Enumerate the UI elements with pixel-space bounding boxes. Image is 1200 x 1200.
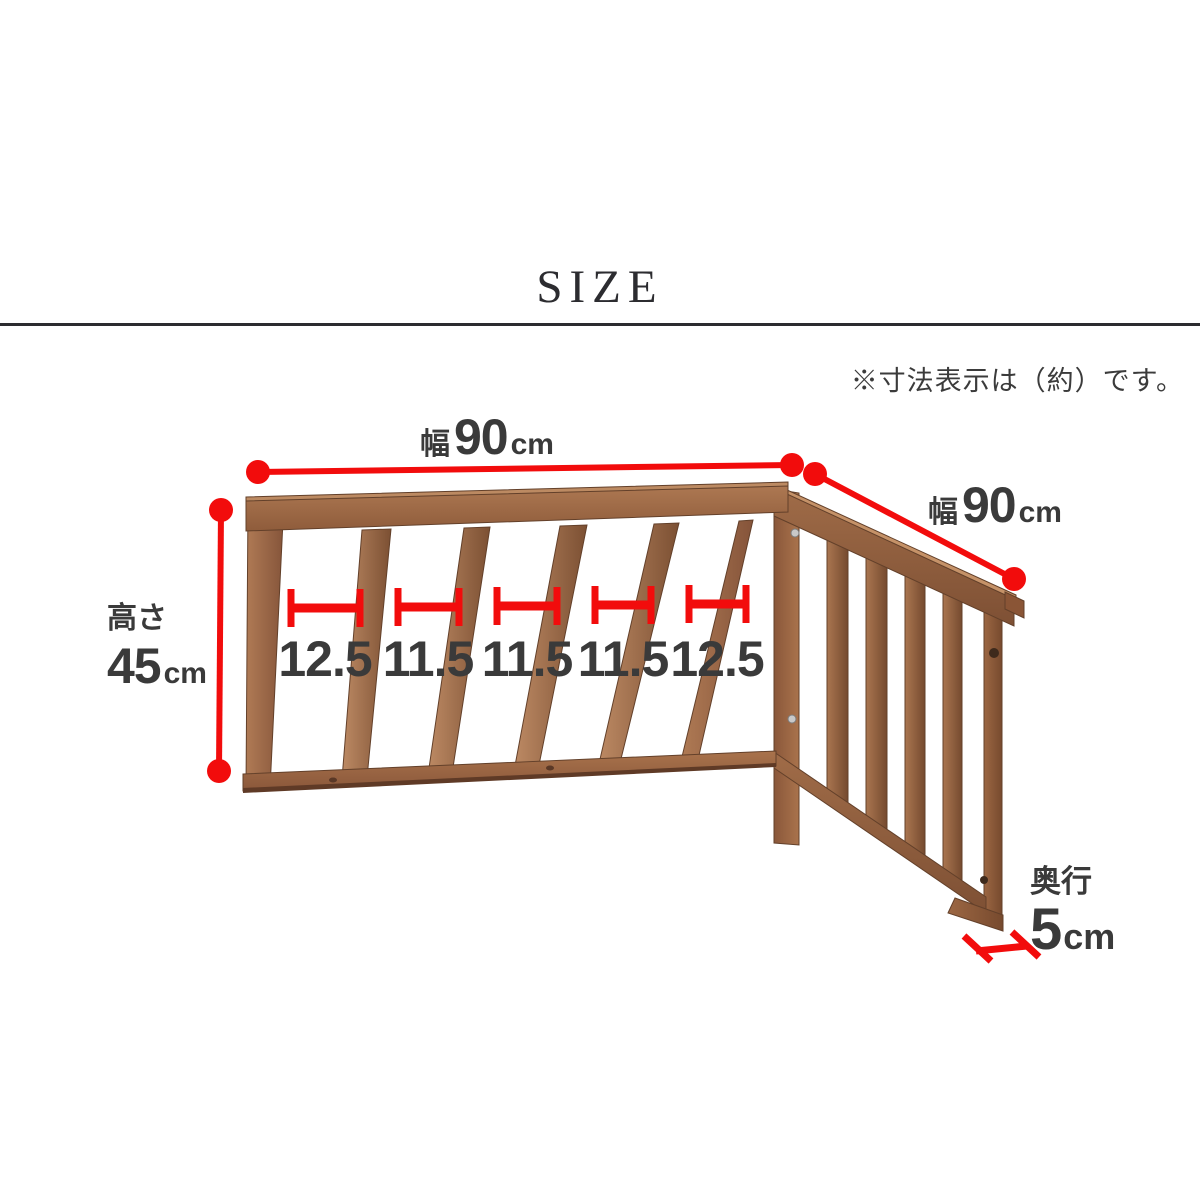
gap-value: 11.5 [482, 630, 573, 688]
gap-value: 12.5 [278, 630, 371, 688]
depth-value: 5 [1030, 901, 1061, 959]
fence-illustration [0, 0, 1200, 1200]
size-diagram-page: SIZE ※寸法表示は（約）です。 [0, 0, 1200, 1200]
width-side-unit: cm [1019, 496, 1062, 530]
right-panel-slat [827, 534, 848, 806]
depth-unit: cm [1063, 919, 1115, 955]
dimension-endpoint-dot [209, 498, 233, 522]
dimension-endpoint-dot [1002, 567, 1026, 591]
width-top-unit: cm [511, 428, 554, 462]
width-top-label: 幅 90 cm [420, 408, 554, 466]
right-panel-slat [905, 573, 925, 858]
gap-dimension-markers [291, 585, 746, 627]
bolt-hole [989, 648, 999, 658]
height-prefix: 高さ [107, 604, 167, 634]
depth-label: 奥行 5 cm [1030, 866, 1115, 959]
height-unit: cm [164, 659, 207, 689]
bolt-hole [980, 876, 988, 884]
width-top-prefix: 幅 [420, 419, 450, 463]
bolt-hole [546, 766, 554, 771]
dimension-endpoint-dot [803, 462, 827, 486]
bolt-hole [329, 778, 337, 783]
width-side-prefix: 幅 [928, 487, 958, 531]
dimension-endpoint-dot [207, 759, 231, 783]
right-panel-slat [866, 554, 887, 832]
gap-value: 11.5 [383, 630, 474, 688]
depth-dimension-marker [964, 932, 1039, 961]
width-side-value: 90 [962, 476, 1016, 534]
gap-marker [398, 588, 459, 626]
gap-marker [291, 589, 360, 627]
dimension-endpoint-dot [246, 460, 270, 484]
width-top-value: 90 [454, 408, 508, 466]
gap-value: 12.5 [670, 630, 763, 688]
corner-post [774, 489, 799, 845]
width-side-label: 幅 90 cm [928, 476, 1062, 534]
fence-right-panel [774, 484, 1024, 931]
gap-value: 11.5 [578, 630, 669, 688]
height-dimension-line [207, 498, 233, 783]
height-value: 45 [107, 641, 161, 691]
dimension-endpoint-dot [780, 453, 804, 477]
screw [791, 529, 799, 537]
height-label: 高さ 45 cm [107, 604, 207, 691]
right-panel-slat [943, 592, 962, 883]
screw [788, 715, 796, 723]
depth-prefix: 奥行 [1030, 866, 1092, 897]
